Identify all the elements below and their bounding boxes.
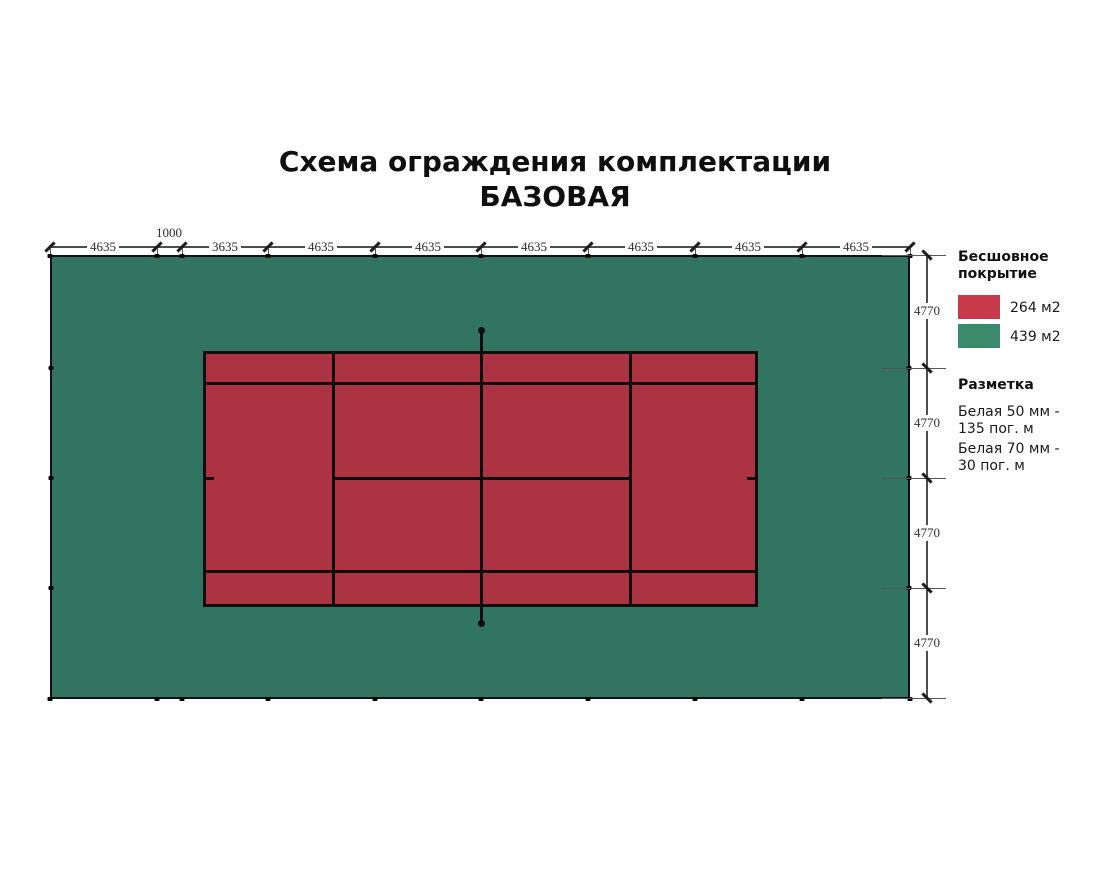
dimension-connector [882, 368, 946, 369]
dim-label-top-7: 4635 [625, 239, 657, 255]
fence-post-marker [49, 476, 54, 480]
legend-marking-title: Разметка [958, 377, 1083, 394]
fence-post-marker [49, 586, 54, 590]
dim-label-top-8: 4635 [732, 239, 764, 255]
center-mark-right [747, 477, 755, 480]
dim-label-top-5: 4635 [412, 239, 444, 255]
page-title: Схема ограждения комплектации БАЗОВАЯ [0, 144, 1110, 214]
dimension-connector [882, 698, 946, 699]
legend-green-swatch [958, 324, 1000, 348]
fence-post-marker [800, 254, 805, 258]
legend-red-swatch [958, 295, 1000, 319]
dim-label-right-2: 4770 [912, 415, 942, 431]
legend-marking-item-1-line1: Белая 50 мм - [958, 404, 1088, 421]
dimension-connector [882, 255, 946, 256]
dim-label-right-1: 4770 [912, 303, 942, 319]
fence-post-marker [586, 697, 591, 701]
fence-post-marker [180, 697, 185, 701]
legend-marking-item-1-line2: 135 пог. м [958, 421, 1088, 438]
fence-post-marker [266, 254, 271, 258]
fence-post-marker [49, 366, 54, 370]
fence-post-marker [800, 697, 805, 701]
fence-post-marker [180, 254, 185, 258]
net-post-bottom [478, 620, 485, 627]
legend-marking-item-2-line2: 30 пог. м [958, 458, 1088, 475]
fence-post-marker [479, 254, 484, 258]
fence-post-marker [48, 254, 53, 258]
net-post-top [478, 327, 485, 334]
fence-post-marker [693, 697, 698, 701]
legend-marking-item-2: Белая 70 мм - 30 пог. м [958, 441, 1088, 475]
legend-marking-item-1: Белая 50 мм - 135 пог. м [958, 404, 1088, 438]
dimension-connector [882, 478, 946, 479]
fence-post-marker [479, 697, 484, 701]
legend-marking-item-2-line1: Белая 70 мм - [958, 441, 1088, 458]
dim-label-top-2: 1000 [155, 225, 183, 241]
dim-label-right-4: 4770 [912, 635, 942, 651]
dim-label-top-1: 4635 [87, 239, 119, 255]
fence-post-marker [155, 697, 160, 701]
dim-label-right-3: 4770 [912, 525, 942, 541]
dim-label-top-3: 3635 [209, 239, 241, 255]
fence-post-marker [373, 254, 378, 258]
net-line [480, 329, 483, 625]
fence-post-marker [155, 254, 160, 258]
fence-post-marker [693, 254, 698, 258]
fence-post-marker [48, 697, 53, 701]
page-title-line2: БАЗОВАЯ [0, 179, 1110, 214]
legend-green-value: 439 м2 [1010, 329, 1061, 345]
dimension-connector [882, 588, 946, 589]
center-mark-left [206, 477, 214, 480]
diagram-page: Схема ограждения комплектации БАЗОВАЯ 46… [0, 0, 1110, 879]
page-title-line1: Схема ограждения комплектации [0, 144, 1110, 179]
legend-coating-title: Бесшовное покрытие [958, 249, 1083, 283]
dim-label-top-6: 4635 [518, 239, 550, 255]
dim-label-top-4: 4635 [305, 239, 337, 255]
fence-post-marker [266, 697, 271, 701]
fence-post-marker [586, 254, 591, 258]
legend-red-value: 264 м2 [1010, 300, 1061, 316]
fence-post-marker [373, 697, 378, 701]
dim-label-top-9: 4635 [840, 239, 872, 255]
